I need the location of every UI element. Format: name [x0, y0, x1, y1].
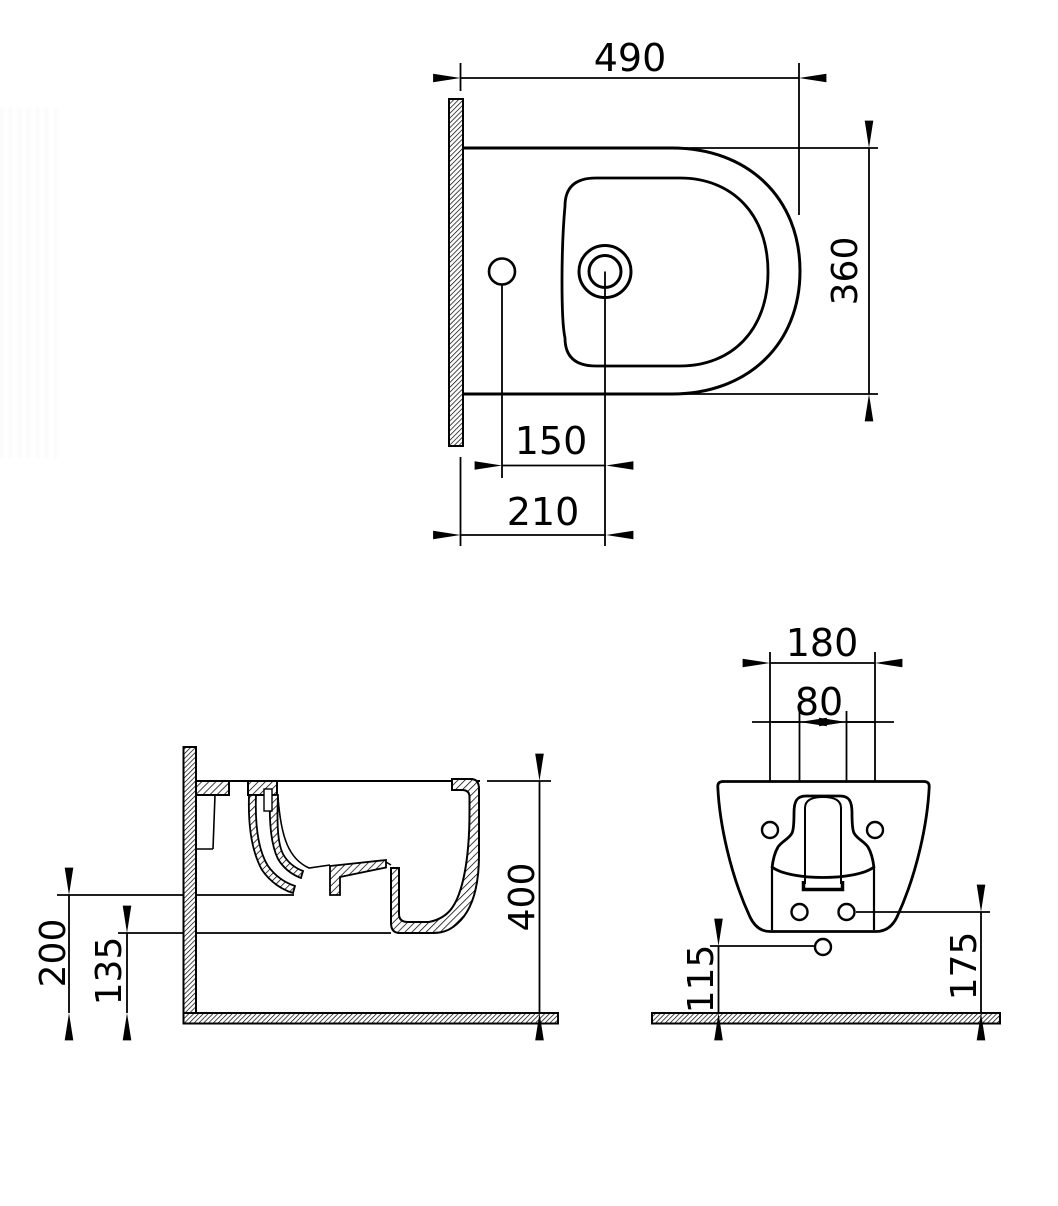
side-view-rim-section-left	[196, 781, 229, 795]
dim-210-label: 210	[507, 490, 580, 534]
side-view-spray-slot	[264, 789, 272, 811]
side-view-channel-wall-inner	[270, 795, 303, 878]
dim-tap-to-drain: 150	[502, 419, 606, 466]
side-view-weir-section	[330, 860, 386, 895]
rear-view-outlet-hole	[815, 939, 831, 955]
rear-view-fixing-hole-left	[792, 904, 808, 920]
dim-wall-to-drain: 210	[461, 457, 607, 546]
side-section-view: 400 200 135	[33, 747, 558, 1024]
dim-400-label: 400	[502, 863, 543, 932]
dim-80-label: 80	[795, 680, 843, 724]
side-view-bowl-back-section	[391, 779, 479, 933]
dim-135-label: 135	[89, 937, 130, 1006]
dim-fixing-hole-spacing: 80	[752, 680, 894, 724]
rear-view-floor-section	[652, 1013, 1000, 1024]
dim-150-label: 150	[515, 419, 588, 463]
dim-115-label: 115	[681, 945, 722, 1014]
side-view-wall-section	[184, 747, 197, 1013]
dim-175-label: 175	[944, 932, 985, 1001]
top-view-wall-section	[449, 99, 463, 446]
dim-spray-level-height: 200	[33, 895, 74, 1013]
dim-180-label: 180	[786, 621, 859, 665]
rear-view-mounting-hole-right	[867, 822, 883, 838]
dim-360-label: 360	[825, 237, 866, 306]
side-view-mounting-cavity	[196, 795, 229, 849]
dim-mounting-hole-spacing: 180	[770, 621, 875, 665]
bidet-technical-drawing: 490 360 150 210	[0, 0, 1058, 1206]
rear-view-mounting-hole-left	[762, 822, 778, 838]
side-view-floor-section	[184, 1013, 559, 1024]
top-view: 490 360 150 210	[449, 36, 878, 546]
dim-underside-height: 135	[89, 933, 130, 1013]
dim-overall-height: 400	[502, 781, 543, 1013]
dim-490-label: 490	[594, 36, 667, 80]
rear-view: 180 80 175 115	[652, 621, 1000, 1024]
dim-overall-width: 360	[825, 148, 869, 394]
drawing-sheet: 490 360 150 210	[0, 0, 1058, 1206]
side-view-bowl-surface-line	[278, 797, 391, 868]
top-view-tap-hole	[489, 259, 515, 285]
rear-view-fixing-hole-right	[839, 904, 855, 920]
dim-outlet-center-height: 115	[681, 945, 815, 1014]
dim-200-label: 200	[33, 919, 74, 988]
